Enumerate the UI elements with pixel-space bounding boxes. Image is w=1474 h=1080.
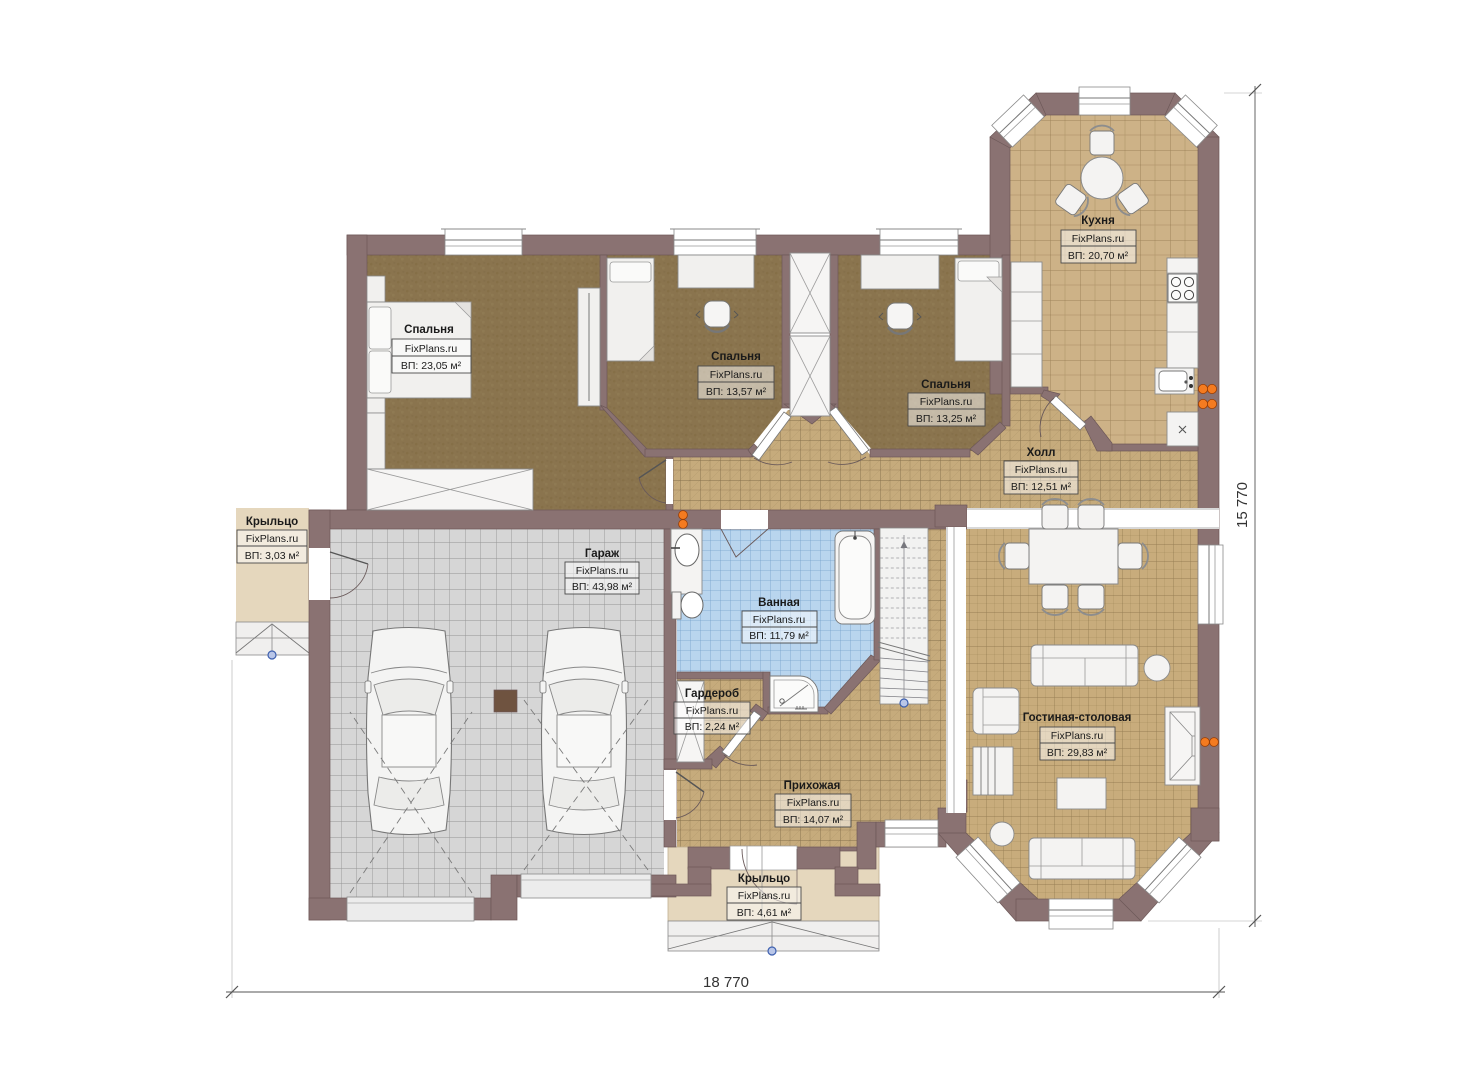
svg-text:ВП: 11,79 м²: ВП: 11,79 м² xyxy=(749,630,809,642)
svg-text:ВП: 13,57 м²: ВП: 13,57 м² xyxy=(706,386,767,398)
svg-text:FixPlans.ru: FixPlans.ru xyxy=(1072,233,1125,245)
svg-text:Прихожая: Прихожая xyxy=(784,780,841,792)
svg-text:ВП: 23,05 м²: ВП: 23,05 м² xyxy=(401,360,462,372)
svg-text:FixPlans.ru: FixPlans.ru xyxy=(787,797,840,809)
svg-text:ВП: 12,51 м²: ВП: 12,51 м² xyxy=(1011,481,1072,493)
svg-text:FixPlans.ru: FixPlans.ru xyxy=(753,614,806,626)
svg-text:FixPlans.ru: FixPlans.ru xyxy=(686,705,739,717)
svg-text:FixPlans.ru: FixPlans.ru xyxy=(405,343,458,355)
svg-text:ВП: 14,07 м²: ВП: 14,07 м² xyxy=(783,814,844,826)
svg-text:Крыльцо: Крыльцо xyxy=(246,516,298,528)
svg-text:Гараж: Гараж xyxy=(585,548,620,560)
svg-text:ВП: 3,03 м²: ВП: 3,03 м² xyxy=(245,550,300,562)
svg-text:FixPlans.ru: FixPlans.ru xyxy=(246,533,299,545)
svg-text:18 770: 18 770 xyxy=(703,974,749,991)
svg-text:Гостиная-столовая: Гостиная-столовая xyxy=(1023,712,1132,724)
svg-text:Ванная: Ванная xyxy=(758,597,800,609)
svg-text:Спальня: Спальня xyxy=(921,379,971,391)
svg-text:Спальня: Спальня xyxy=(404,324,454,336)
svg-text:Спальня: Спальня xyxy=(711,351,761,363)
svg-text:ВП: 43,98 м²: ВП: 43,98 м² xyxy=(572,581,633,593)
svg-text:FixPlans.ru: FixPlans.ru xyxy=(710,369,763,381)
svg-text:FixPlans.ru: FixPlans.ru xyxy=(1051,730,1104,742)
svg-text:ВП: 20,70 м²: ВП: 20,70 м² xyxy=(1068,250,1129,262)
svg-text:ВП: 13,25 м²: ВП: 13,25 м² xyxy=(916,413,977,425)
svg-text:Гардероб: Гардероб xyxy=(685,688,739,700)
svg-text:Кухня: Кухня xyxy=(1081,215,1115,227)
svg-text:Холл: Холл xyxy=(1027,447,1056,459)
svg-text:15 770: 15 770 xyxy=(1234,482,1251,528)
svg-text:FixPlans.ru: FixPlans.ru xyxy=(920,396,973,408)
svg-text:Крыльцо: Крыльцо xyxy=(738,873,790,885)
svg-text:ВП: 2,24 м²: ВП: 2,24 м² xyxy=(685,721,740,733)
svg-text:ВП: 29,83 м²: ВП: 29,83 м² xyxy=(1047,747,1108,759)
svg-text:ВП: 4,61 м²: ВП: 4,61 м² xyxy=(737,907,792,919)
svg-text:FixPlans.ru: FixPlans.ru xyxy=(738,890,791,902)
svg-text:FixPlans.ru: FixPlans.ru xyxy=(1015,464,1068,476)
svg-text:FixPlans.ru: FixPlans.ru xyxy=(576,565,629,577)
